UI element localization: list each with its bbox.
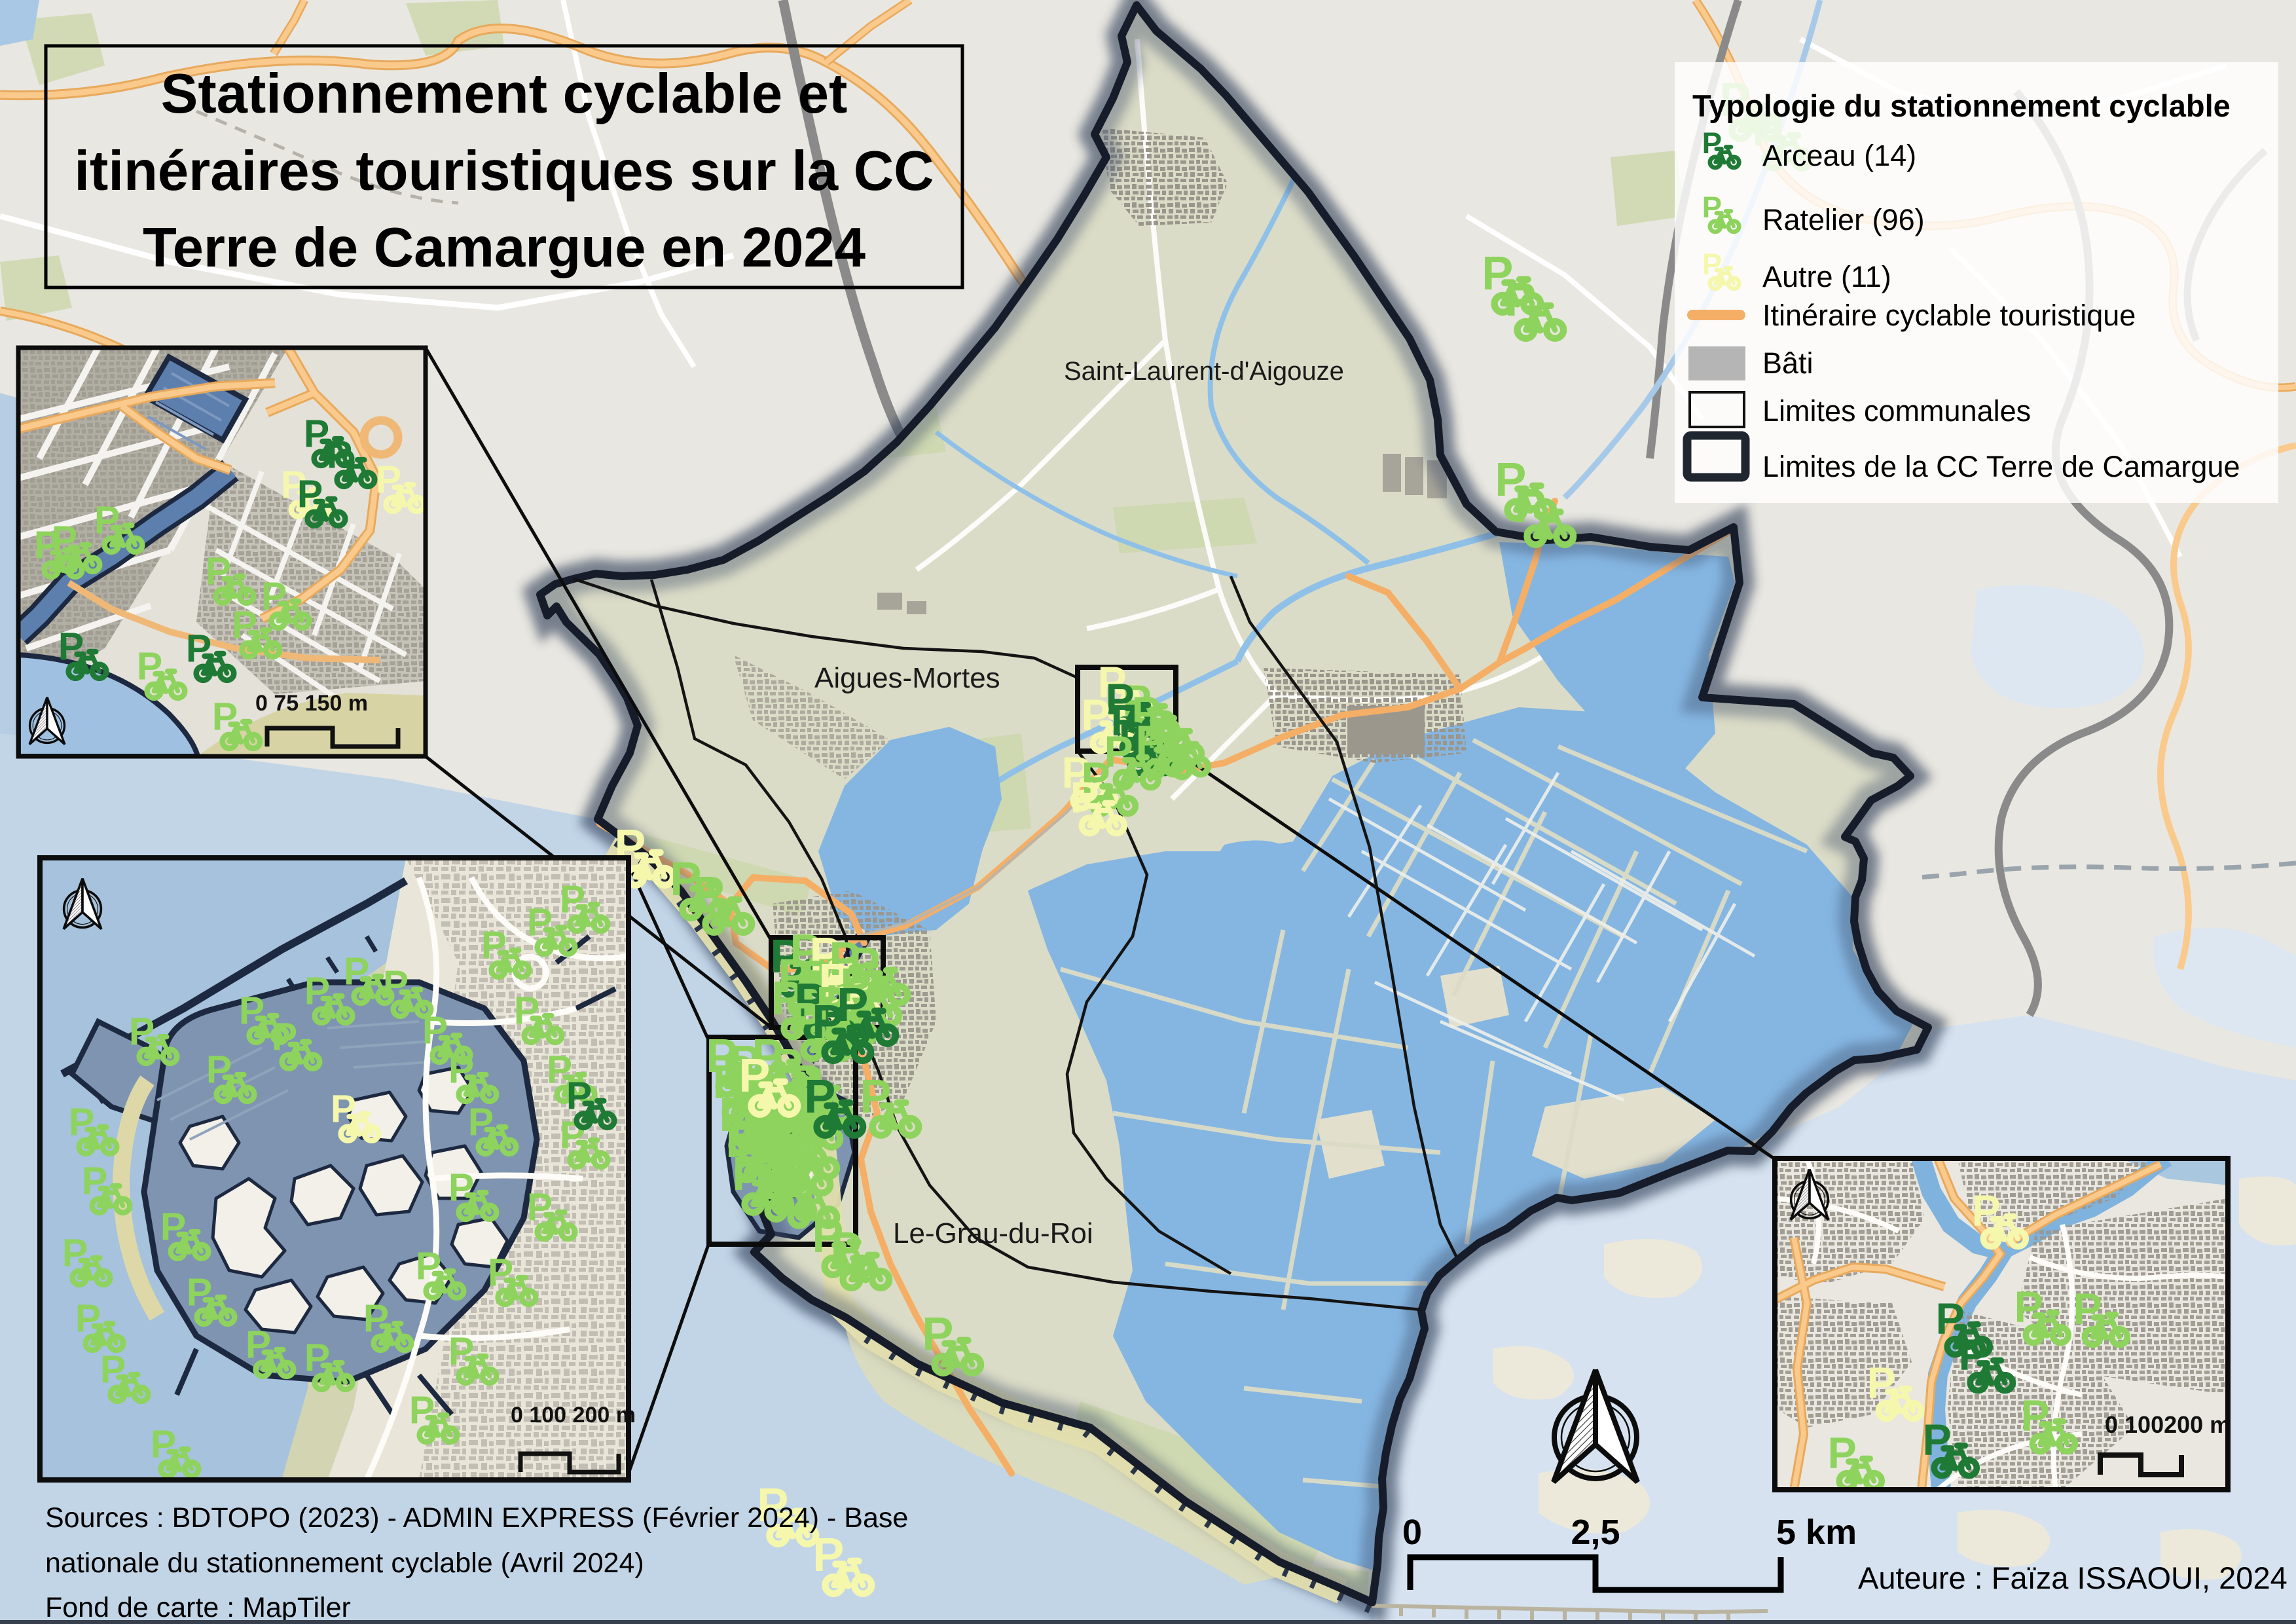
svg-text:Sources : BDTOPO (2023) - ADMI: Sources : BDTOPO (2023) - ADMIN EXPRESS … [45,1502,908,1534]
svg-text:Ratelier (96): Ratelier (96) [1762,203,1925,236]
svg-text:Stationnement cyclable et: Stationnement cyclable et [161,63,848,125]
svg-text:Typologie du stationnement cyc: Typologie du stationnement cyclable [1692,88,2231,123]
svg-text:Itinéraire cyclable touristiqu: Itinéraire cyclable touristique [1762,299,2136,332]
svg-text:itinéraires touristiques sur l: itinéraires touristiques sur la CC [74,140,934,202]
svg-text:2,5: 2,5 [1571,1513,1620,1552]
svg-text:Auteure : Faïza ISSAOUI, 2024: Auteure : Faïza ISSAOUI, 2024 [1858,1560,2287,1595]
svg-text:Limites communales: Limites communales [1762,394,2031,428]
svg-text:Saint-Laurent-d'Aigouze: Saint-Laurent-d'Aigouze [1064,357,1344,386]
svg-text:Fond de carte : MapTiler: Fond de carte : MapTiler [45,1592,351,1623]
svg-text:Autre (11): Autre (11) [1762,260,1891,293]
svg-text:0 100 200 m: 0 100 200 m [511,1403,636,1428]
svg-text:Limites de la CC Terre de Cama: Limites de la CC Terre de Camargue [1762,450,2240,483]
svg-text:Arceau (14): Arceau (14) [1762,139,1916,172]
svg-text:0 100200 m: 0 100200 m [2105,1411,2231,1438]
svg-text:Bâti: Bâti [1762,346,1813,380]
svg-text:nationale du stationnement cyc: nationale du stationnement cyclable (Avr… [45,1547,644,1579]
svg-text:Le-Grau-du-Roi: Le-Grau-du-Roi [893,1217,1093,1249]
svg-text:Aigues-Mortes: Aigues-Mortes [814,662,1000,694]
svg-text:Terre de Camargue en 2024: Terre de Camargue en 2024 [143,217,866,279]
svg-text:0 75 150 m: 0 75 150 m [255,691,368,716]
svg-text:0: 0 [1402,1513,1422,1552]
svg-text:5 km: 5 km [1776,1513,1857,1552]
